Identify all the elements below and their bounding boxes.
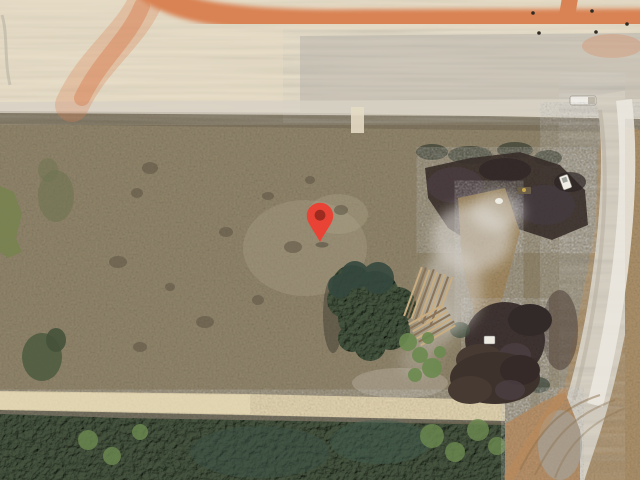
olive-patch	[38, 158, 58, 182]
pile-core	[479, 158, 531, 182]
truck-cab	[588, 97, 595, 104]
graded-construction-zone	[0, 0, 640, 133]
vehicle	[484, 336, 495, 344]
excavator-cab	[522, 188, 526, 192]
teal-canopy-patch	[190, 426, 330, 478]
map-viewport[interactable]	[0, 0, 640, 480]
south-pile-core	[508, 304, 552, 336]
soil-column	[542, 290, 578, 370]
pin-inner-dot	[315, 210, 326, 221]
orange-road-branch	[566, 0, 571, 22]
orange-spill	[582, 34, 640, 58]
driveway-stub	[351, 107, 364, 133]
dark-green-patch	[46, 328, 66, 352]
teal-canopy-patch	[330, 420, 430, 464]
pin-shadow	[316, 242, 329, 248]
satellite-imagery	[0, 0, 640, 480]
vehicle	[495, 198, 503, 204]
south-band	[0, 391, 506, 480]
